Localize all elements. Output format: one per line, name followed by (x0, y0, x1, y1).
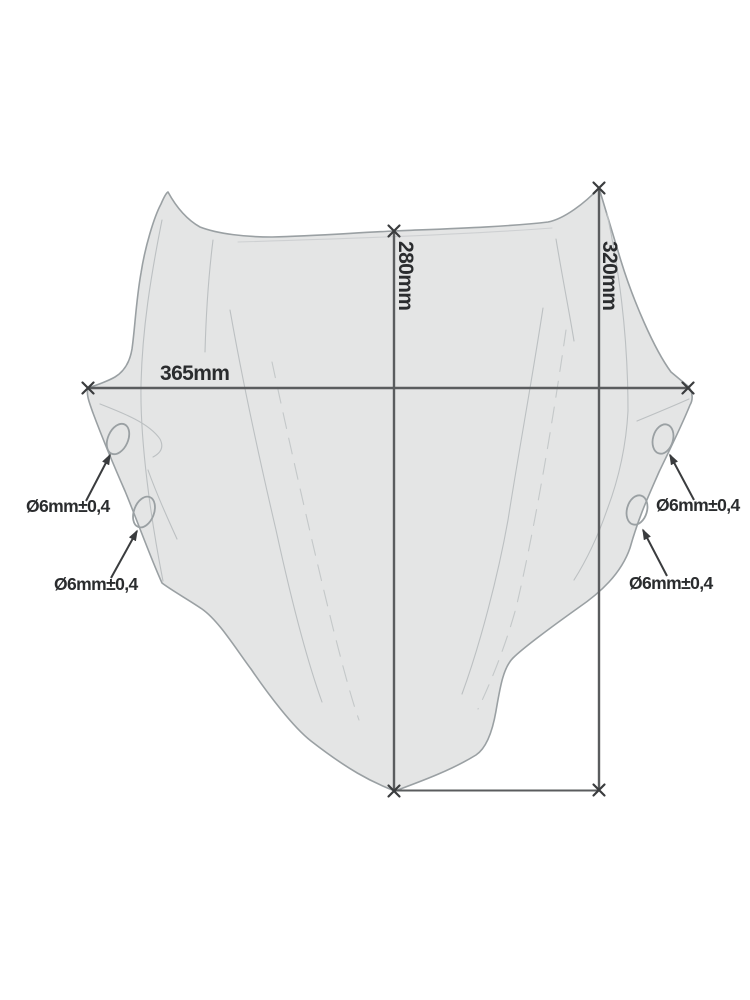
center-height-dimension-label: 280mm (394, 241, 417, 310)
width-dimension-label: 365mm (160, 362, 229, 385)
diagram-canvas: 365mm 280mm 320mm Ø6mm±0,4 Ø6mm±0,4 Ø6mm… (0, 0, 750, 1000)
arrow-left-upper-hole (86, 455, 110, 501)
hole-label-left-upper: Ø6mm±0,4 (26, 496, 110, 516)
windscreen-technical-drawing: 365mm 280mm 320mm Ø6mm±0,4 Ø6mm±0,4 Ø6mm… (0, 0, 750, 1000)
hole-label-left-lower: Ø6mm±0,4 (54, 574, 138, 594)
hole-label-right-lower: Ø6mm±0,4 (629, 573, 713, 593)
side-height-dimension-label: 320mm (598, 241, 621, 310)
arrow-right-upper-hole (670, 455, 694, 500)
arrow-right-lower-hole (643, 530, 667, 576)
arrow-left-lower-hole (111, 531, 137, 578)
hole-label-right-upper: Ø6mm±0,4 (656, 495, 740, 515)
